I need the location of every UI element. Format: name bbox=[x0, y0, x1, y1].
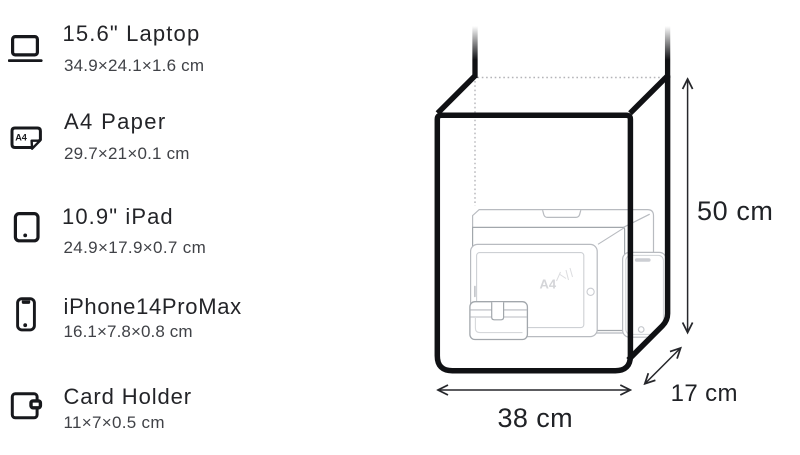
svg-text:38 cm: 38 cm bbox=[498, 403, 574, 433]
svg-text:17 cm: 17 cm bbox=[671, 380, 738, 407]
svg-text:50 cm: 50 cm bbox=[697, 196, 774, 226]
svg-text:A4: A4 bbox=[540, 277, 557, 292]
